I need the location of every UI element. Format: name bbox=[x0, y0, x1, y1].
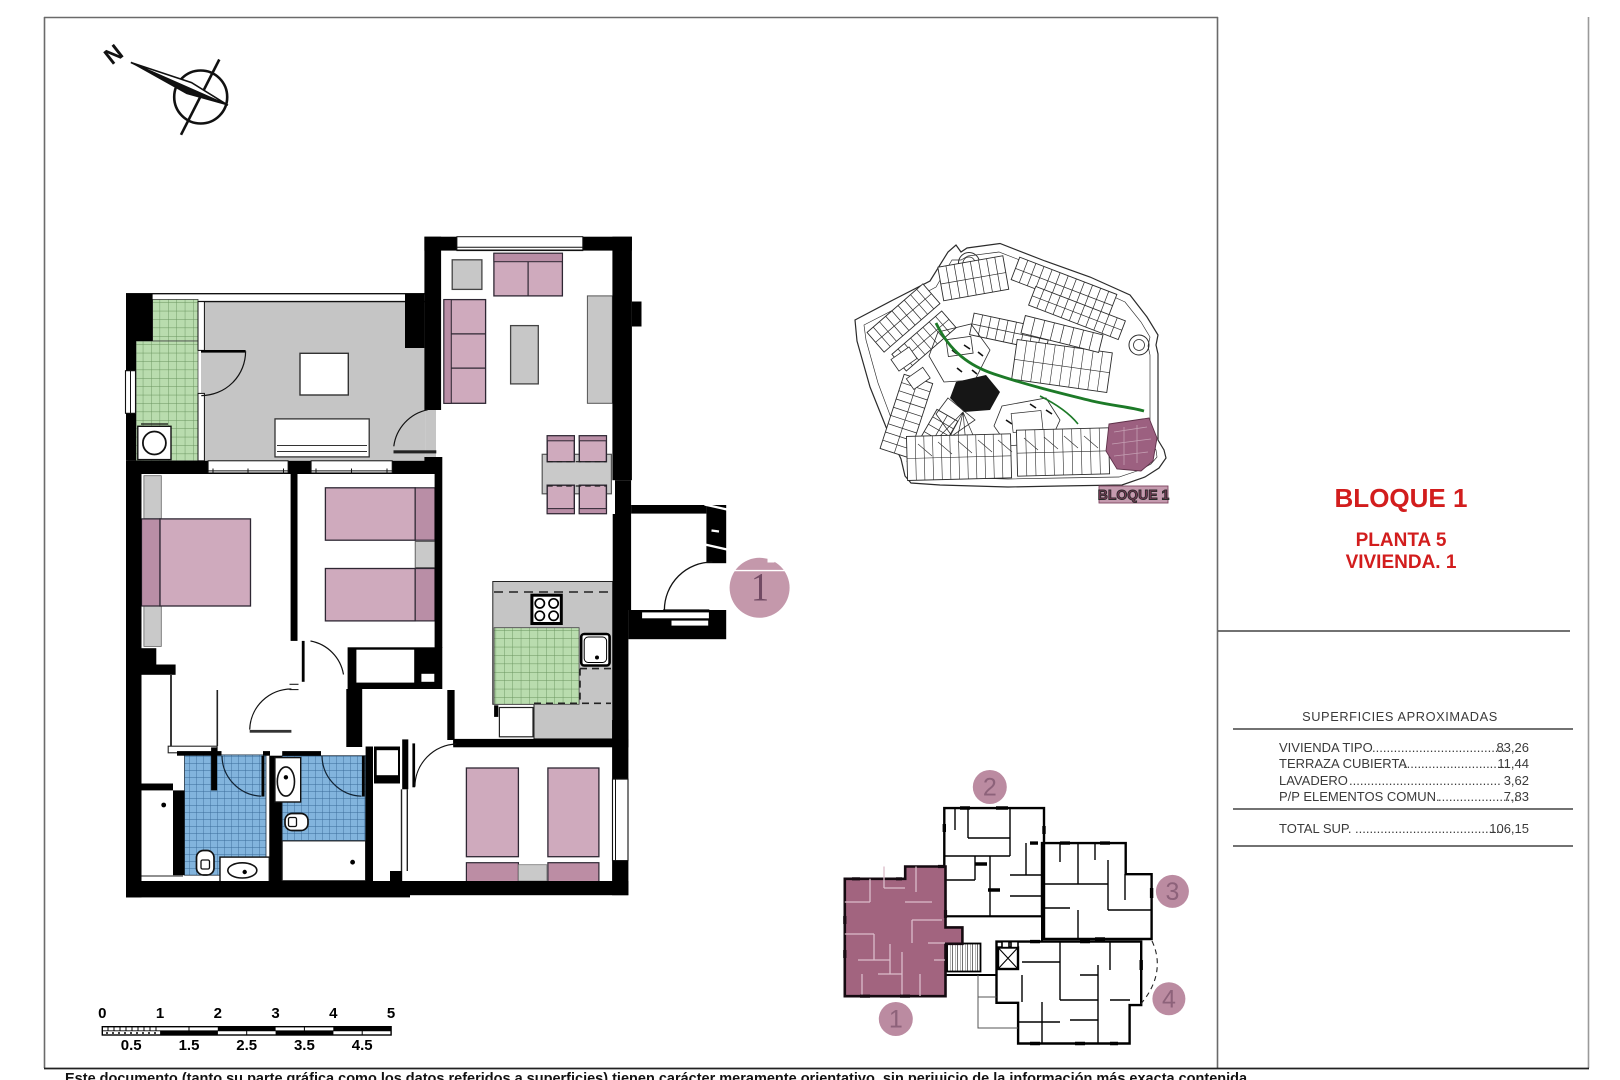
svg-text:..............................: ........................................… bbox=[1355, 821, 1503, 836]
svg-text:2: 2 bbox=[983, 774, 997, 802]
svg-text:3: 3 bbox=[1165, 878, 1179, 906]
svg-text:3.5: 3.5 bbox=[294, 1037, 315, 1054]
svg-text:LAVADERO: LAVADERO bbox=[1279, 773, 1348, 788]
svg-text:PLANTA 5: PLANTA 5 bbox=[1356, 530, 1447, 551]
svg-text:..............................: ..................................... bbox=[1372, 740, 1506, 755]
svg-text:1: 1 bbox=[889, 1006, 903, 1034]
svg-text:SUPERFICIES APROXIMADAS: SUPERFICIES APROXIMADAS bbox=[1302, 709, 1498, 724]
svg-text:VIVIENDA. 1: VIVIENDA. 1 bbox=[1346, 552, 1457, 573]
svg-text:TOTAL SUP.: TOTAL SUP. bbox=[1279, 821, 1352, 836]
svg-text:TERRAZA CUBIERTA: TERRAZA CUBIERTA bbox=[1279, 756, 1407, 771]
svg-text:11,44: 11,44 bbox=[1497, 756, 1529, 771]
svg-text:..............................: ........................................… bbox=[1349, 773, 1501, 788]
svg-text:0.5: 0.5 bbox=[121, 1037, 142, 1054]
svg-text:2: 2 bbox=[214, 1005, 222, 1022]
svg-text:3: 3 bbox=[271, 1005, 279, 1022]
svg-text:4: 4 bbox=[329, 1005, 338, 1022]
svg-text:Este documento (tanto su parte: Este documento (tanto su parte gráfica c… bbox=[65, 1071, 1248, 1080]
svg-text:4: 4 bbox=[1162, 985, 1176, 1013]
svg-text:83,26: 83,26 bbox=[1496, 740, 1529, 755]
svg-text:2.5: 2.5 bbox=[236, 1037, 257, 1054]
svg-text:P/P ELEMENTOS COMUN.: P/P ELEMENTOS COMUN. bbox=[1279, 789, 1440, 804]
svg-text:1.5: 1.5 bbox=[179, 1037, 200, 1054]
svg-text:5: 5 bbox=[387, 1005, 395, 1022]
svg-text:7,83: 7,83 bbox=[1504, 789, 1529, 804]
svg-text:.............................: ............................. bbox=[1403, 756, 1508, 771]
svg-text:VIVIENDA TIPO: VIVIENDA TIPO bbox=[1279, 740, 1373, 755]
svg-text:106,15: 106,15 bbox=[1489, 821, 1529, 836]
svg-text:4.5: 4.5 bbox=[352, 1037, 373, 1054]
svg-text:BLOQUE 1: BLOQUE 1 bbox=[1098, 487, 1170, 503]
svg-text:0: 0 bbox=[98, 1005, 106, 1022]
svg-text:1: 1 bbox=[156, 1005, 164, 1022]
svg-text:3,62: 3,62 bbox=[1504, 773, 1529, 788]
svg-text:BLOQUE 1: BLOQUE 1 bbox=[1335, 483, 1468, 513]
svg-text:1: 1 bbox=[751, 566, 769, 610]
